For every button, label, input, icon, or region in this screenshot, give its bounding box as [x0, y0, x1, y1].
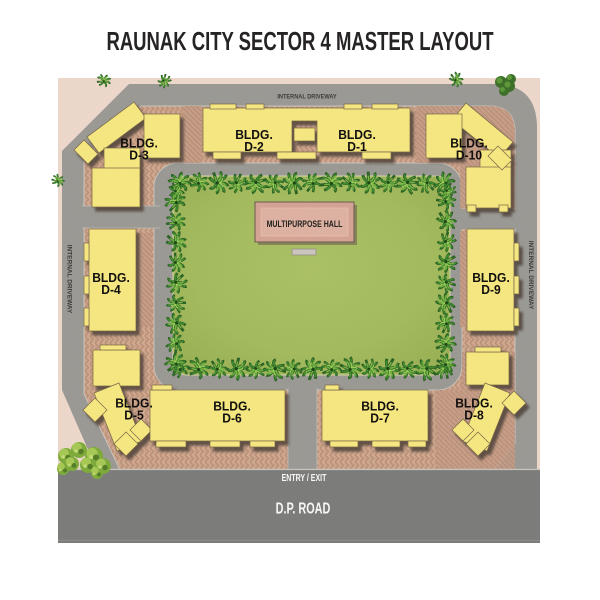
svg-text:RAUNAK CITY SECTOR 4 MASTER LA: RAUNAK CITY SECTOR 4 MASTER LAYOUT	[106, 27, 493, 56]
